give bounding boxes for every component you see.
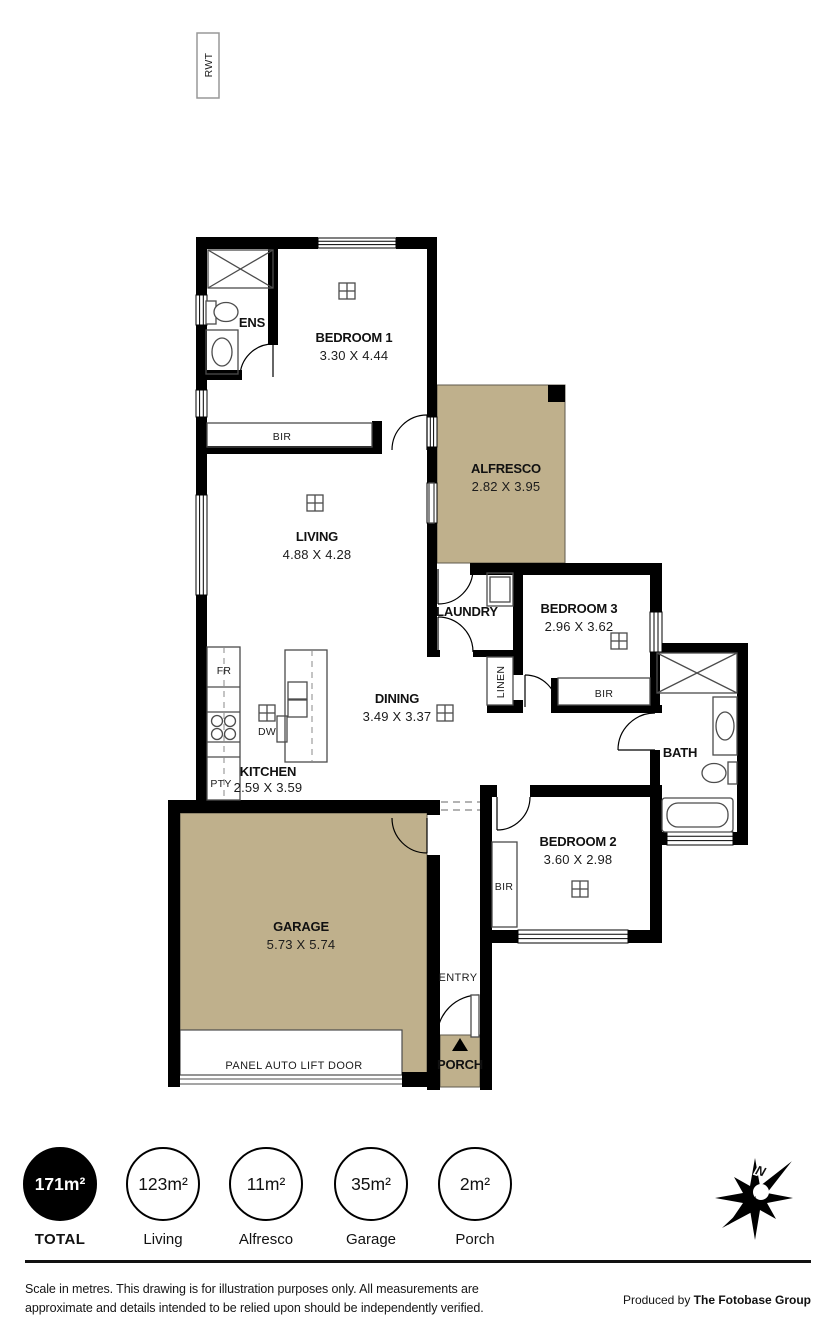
window (196, 390, 207, 417)
living-dims: 4.88 X 4.28 (283, 547, 352, 562)
entry-threshold-dashes (441, 802, 480, 810)
window (667, 832, 733, 845)
sink (288, 682, 307, 717)
island-bench: DW (258, 650, 327, 762)
total-area-label: TOTAL (8, 1231, 112, 1248)
floorplan-page: RWT PANEL AUTO LIFT DOOR (0, 0, 836, 1333)
entry-label: ENTRY (438, 972, 477, 984)
alfresco-area-circle: 11m² (229, 1147, 303, 1221)
ceiling-light-icon (572, 881, 588, 897)
fotobase-compass-logo: N (715, 1158, 793, 1240)
alfresco-area-value: 11m² (247, 1174, 286, 1195)
window (650, 612, 662, 652)
bedroom1-dims: 3.30 X 4.44 (320, 348, 389, 363)
pantry-label: PTY (210, 778, 231, 790)
bedroom2-label: BEDROOM 2 (540, 834, 617, 849)
area-summary-living: 123m² Living (111, 1147, 215, 1248)
shower (208, 250, 273, 288)
window (518, 930, 628, 943)
bir-label: BIR (273, 431, 292, 443)
bathroom-fixtures (657, 653, 737, 832)
bedroom3-label: BEDROOM 3 (541, 601, 618, 616)
bath-label: BATH (663, 745, 697, 760)
window (196, 495, 207, 595)
built-in-robe: BIR (207, 423, 372, 447)
panel-door-label: PANEL AUTO LIFT DOOR (225, 1060, 362, 1072)
living-area-circle: 123m² (126, 1147, 200, 1221)
door-arc (438, 617, 473, 652)
garage-panel-door: PANEL AUTO LIFT DOOR (180, 1030, 402, 1084)
door-arc (392, 415, 427, 450)
rainwater-tank: RWT (197, 33, 219, 98)
floorplan-drawing: RWT PANEL AUTO LIFT DOOR (0, 0, 836, 1333)
area-summary-alfresco: 11m² Alfresco (214, 1147, 318, 1248)
bathtub (662, 798, 733, 832)
disclaimer-line1: Scale in metres. This drawing is for ill… (25, 1280, 565, 1299)
kitchen-dims: 2.59 X 3.59 (234, 780, 303, 795)
bedroom1-label: BEDROOM 1 (316, 330, 393, 345)
door-arc (618, 713, 655, 750)
disclaimer-line2: approximate and details intended to be r… (25, 1299, 565, 1318)
ceiling-light-icon (611, 633, 627, 649)
garage-dims: 5.73 X 5.74 (267, 937, 336, 952)
fridge-label: FR (217, 665, 232, 677)
linen-label: LINEN (495, 666, 507, 698)
fridge-space: FR (217, 665, 232, 677)
window (427, 417, 437, 447)
built-in-robe: BIR (558, 678, 650, 705)
dishwasher-label: DW (258, 726, 276, 738)
door-arc (437, 995, 479, 1037)
window (318, 238, 396, 248)
vanity-basin (713, 697, 737, 755)
ceiling-light-icon (259, 705, 275, 721)
porch-area-label: Porch (423, 1231, 527, 1248)
sliding-door (427, 483, 437, 523)
garage-label: GARAGE (273, 919, 329, 934)
ceiling-light-icon (339, 283, 355, 299)
kitchen-label: KITCHEN (240, 764, 296, 779)
ceiling-light-icon (437, 705, 453, 721)
living-area-value: 123m² (138, 1174, 188, 1195)
total-area-value: 171m² (35, 1174, 86, 1195)
alfresco-label: ALFRESCO (471, 461, 541, 476)
bir-label: BIR (595, 688, 614, 700)
garage-area-circle: 35m² (334, 1147, 408, 1221)
produced-by-company: The Fotobase Group (694, 1293, 811, 1307)
area-summary-porch: 2m² Porch (423, 1147, 527, 1248)
area-summary-total: 171m² TOTAL (8, 1147, 112, 1248)
ensuite-fixtures (206, 250, 273, 374)
bir-label: BIR (495, 881, 514, 893)
laundry-trough (487, 573, 513, 606)
total-area-circle: 171m² (23, 1147, 97, 1221)
alfresco-area-label: Alfresco (214, 1231, 318, 1248)
laundry-label: LAUNDRY (436, 604, 498, 619)
porch-label: PORCH (437, 1057, 483, 1072)
bedroom3-dims: 2.96 X 3.62 (545, 619, 614, 634)
built-in-robe: BIR (492, 842, 517, 927)
shower (657, 653, 737, 693)
dining-label: DINING (375, 691, 419, 706)
garage-area-value: 35m² (351, 1174, 391, 1195)
garage-area-label: Garage (319, 1231, 423, 1248)
produced-by: Produced by The Fotobase Group (623, 1293, 811, 1307)
bedroom2-dims: 3.60 X 2.98 (544, 852, 613, 867)
dining-dims: 3.49 X 3.37 (363, 709, 432, 724)
toilet (206, 301, 238, 324)
porch-area-value: 2m² (460, 1174, 490, 1195)
linen-cupboard: LINEN (487, 657, 513, 705)
alfresco-dims: 2.82 X 3.95 (472, 479, 541, 494)
ceiling-light-icon (307, 495, 323, 511)
ens-label: ENS (239, 315, 266, 330)
door-arc (240, 344, 273, 377)
living-label: LIVING (296, 529, 338, 544)
produced-by-prefix: Produced by (623, 1293, 694, 1307)
door-arc (438, 569, 473, 604)
toilet (702, 762, 737, 784)
porch-area-circle: 2m² (438, 1147, 512, 1221)
area-summary-garage: 35m² Garage (319, 1147, 423, 1248)
vanity-basin (206, 330, 238, 374)
disclaimer-text: Scale in metres. This drawing is for ill… (25, 1280, 565, 1318)
rwt-label: RWT (203, 52, 215, 77)
living-area-label: Living (111, 1231, 215, 1248)
footer-divider (25, 1260, 811, 1263)
door-arc (497, 797, 530, 830)
